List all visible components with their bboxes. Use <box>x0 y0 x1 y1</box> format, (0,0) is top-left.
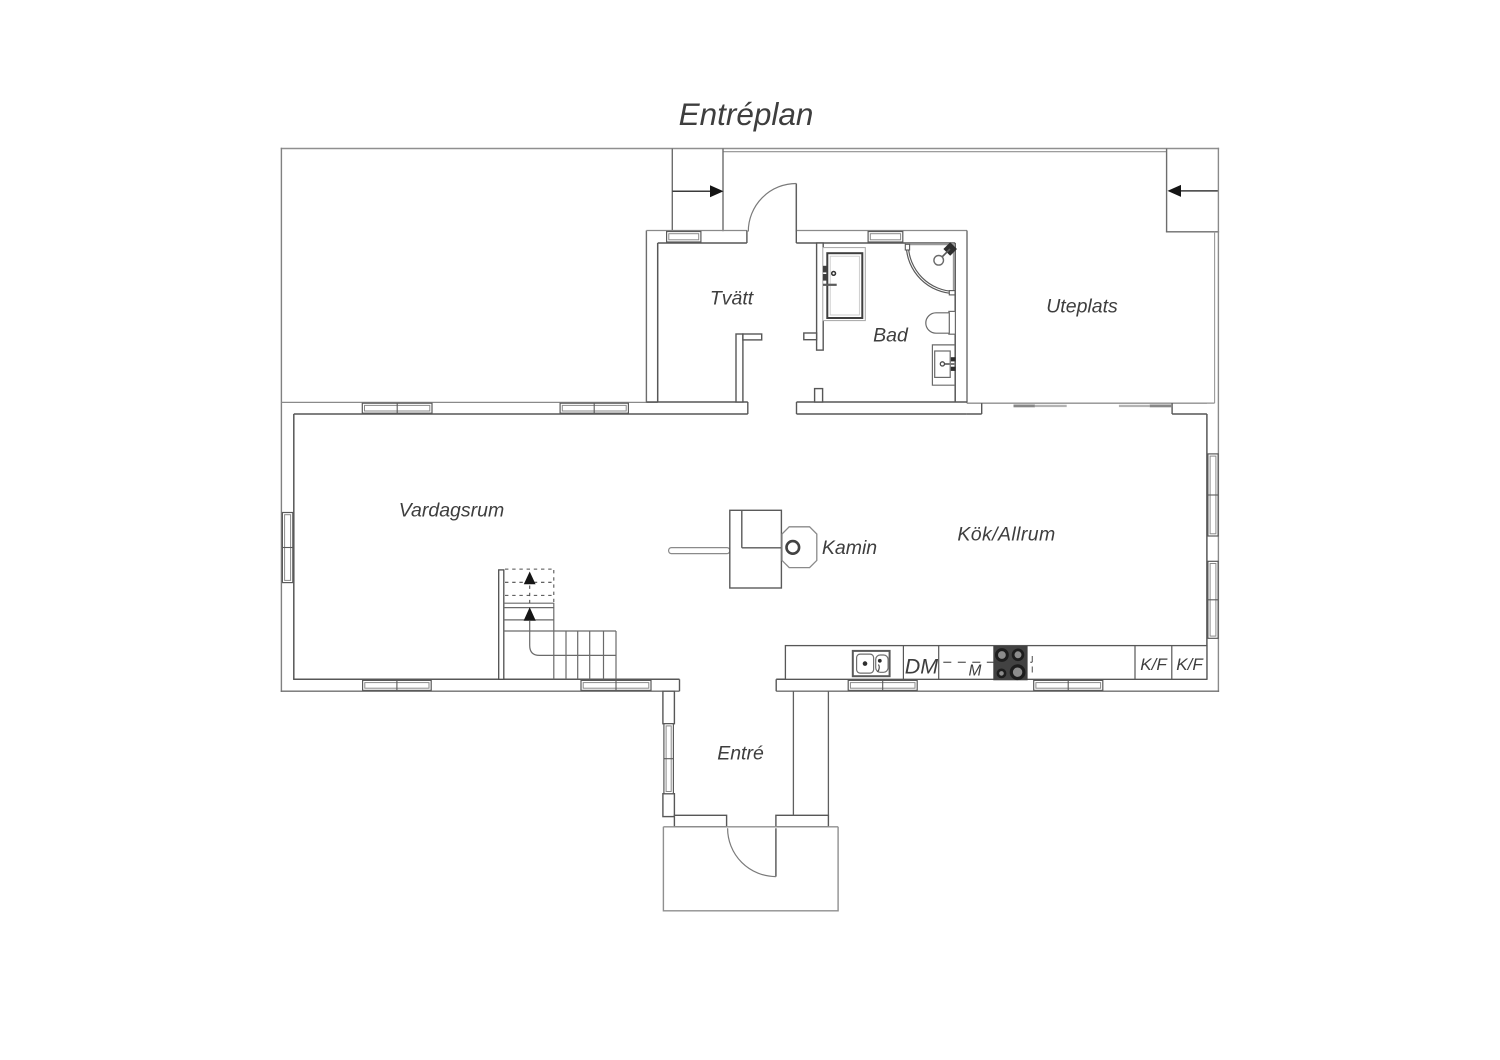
svg-text:K/F: K/F <box>1140 655 1168 674</box>
svg-text:Kamin: Kamin <box>822 537 877 559</box>
svg-text:Vardagsrum: Vardagsrum <box>399 500 505 522</box>
svg-text:Tvätt: Tvätt <box>710 288 755 310</box>
svg-text:Uteplats: Uteplats <box>1046 296 1118 318</box>
svg-text:K/F: K/F <box>1176 655 1204 674</box>
svg-text:DM: DM <box>905 655 939 679</box>
svg-text:Bad: Bad <box>873 325 909 347</box>
svg-text:Kök/Allrum: Kök/Allrum <box>957 524 1055 546</box>
svg-text:Entréplan: Entréplan <box>679 96 814 132</box>
svg-text:Entré: Entré <box>717 743 764 765</box>
svg-text:M: M <box>969 663 982 680</box>
